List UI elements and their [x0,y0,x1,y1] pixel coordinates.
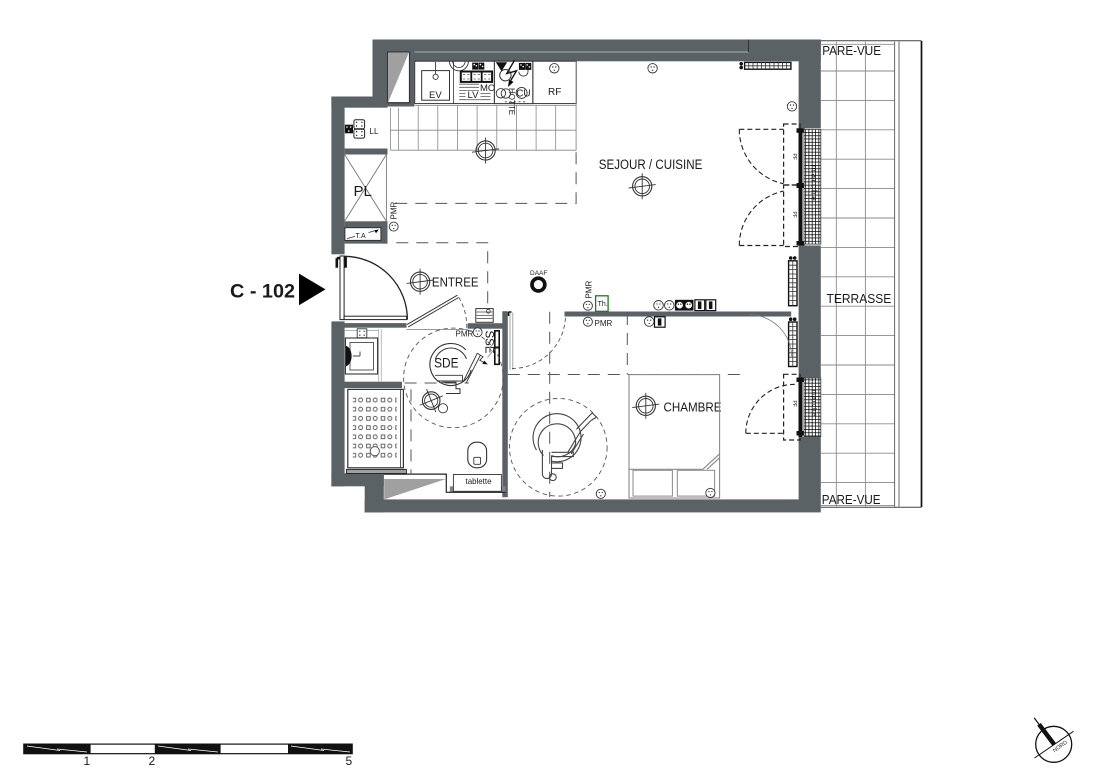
svg-text:PF: PF [791,212,797,218]
svg-text:C - 102: C - 102 [230,281,295,303]
svg-text:PF: PF [791,401,797,407]
svg-text:HOTTE: HOTTE [507,88,516,115]
svg-text:PMR: PMR [595,319,613,328]
svg-text:PARE-VUE: PARE-VUE [822,44,881,58]
svg-text:TERRASSE: TERRASSE [827,292,892,306]
svg-text:SDE: SDE [434,356,459,371]
svg-text:CHAMBRE: CHAMBRE [664,399,722,414]
svg-text:marche: marche [811,390,817,417]
svg-text:EV: EV [429,90,442,101]
svg-text:SEJOUR / CUISINE: SEJOUR / CUISINE [599,157,703,172]
svg-text:2: 2 [149,754,156,768]
svg-text:RF: RF [548,87,561,98]
svg-text:PMR: PMR [390,202,399,220]
svg-text:PMR: PMR [585,281,594,299]
svg-text:PL: PL [354,183,372,200]
svg-text:Th.: Th. [598,301,608,308]
svg-text:ENTREE: ENTREE [432,275,479,290]
svg-text:MO: MO [480,83,495,94]
svg-text:1: 1 [84,754,91,768]
svg-text:LV: LV [468,90,480,101]
svg-text:CU: CU [516,88,530,99]
svg-text:marche: marche [810,165,819,202]
svg-text:5: 5 [346,754,353,768]
svg-text:T.A: T.A [356,233,366,240]
svg-text:PARE-VUE: PARE-VUE [822,493,881,507]
svg-text:DAAF: DAAF [530,270,547,277]
svg-text:PMR: PMR [456,329,474,338]
svg-text:PF: PF [791,154,797,160]
svg-text:LL: LL [370,127,379,136]
svg-text:tablette: tablette [466,476,492,486]
